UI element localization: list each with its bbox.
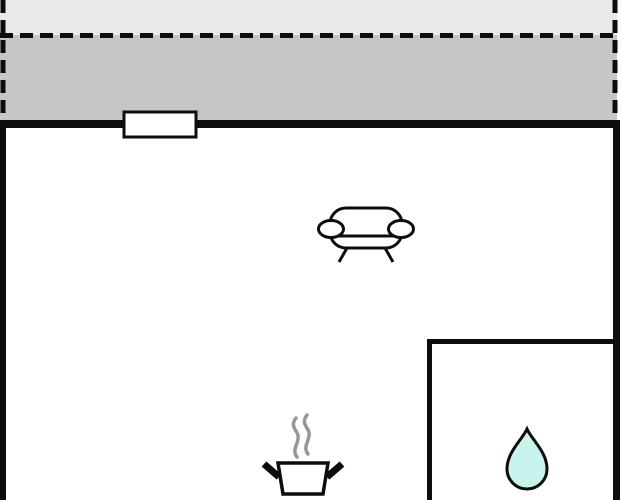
- terrace-region: [0, 0, 617, 120]
- bathroom-wall-left: [427, 339, 432, 500]
- terrace-lower-area: [0, 35, 617, 120]
- bathroom-wall-top: [427, 339, 620, 344]
- floorplan-svg: [0, 0, 620, 500]
- floorplan-canvas: [0, 0, 620, 500]
- wall-left: [0, 120, 6, 500]
- sofa-armrest-left: [319, 221, 344, 238]
- wall-top: [0, 120, 620, 128]
- window-opening: [124, 112, 196, 137]
- terrace-upper-strip: [0, 0, 617, 35]
- sofa-armrest-right: [389, 221, 414, 238]
- pot-body: [278, 463, 328, 494]
- wall-right: [613, 120, 620, 500]
